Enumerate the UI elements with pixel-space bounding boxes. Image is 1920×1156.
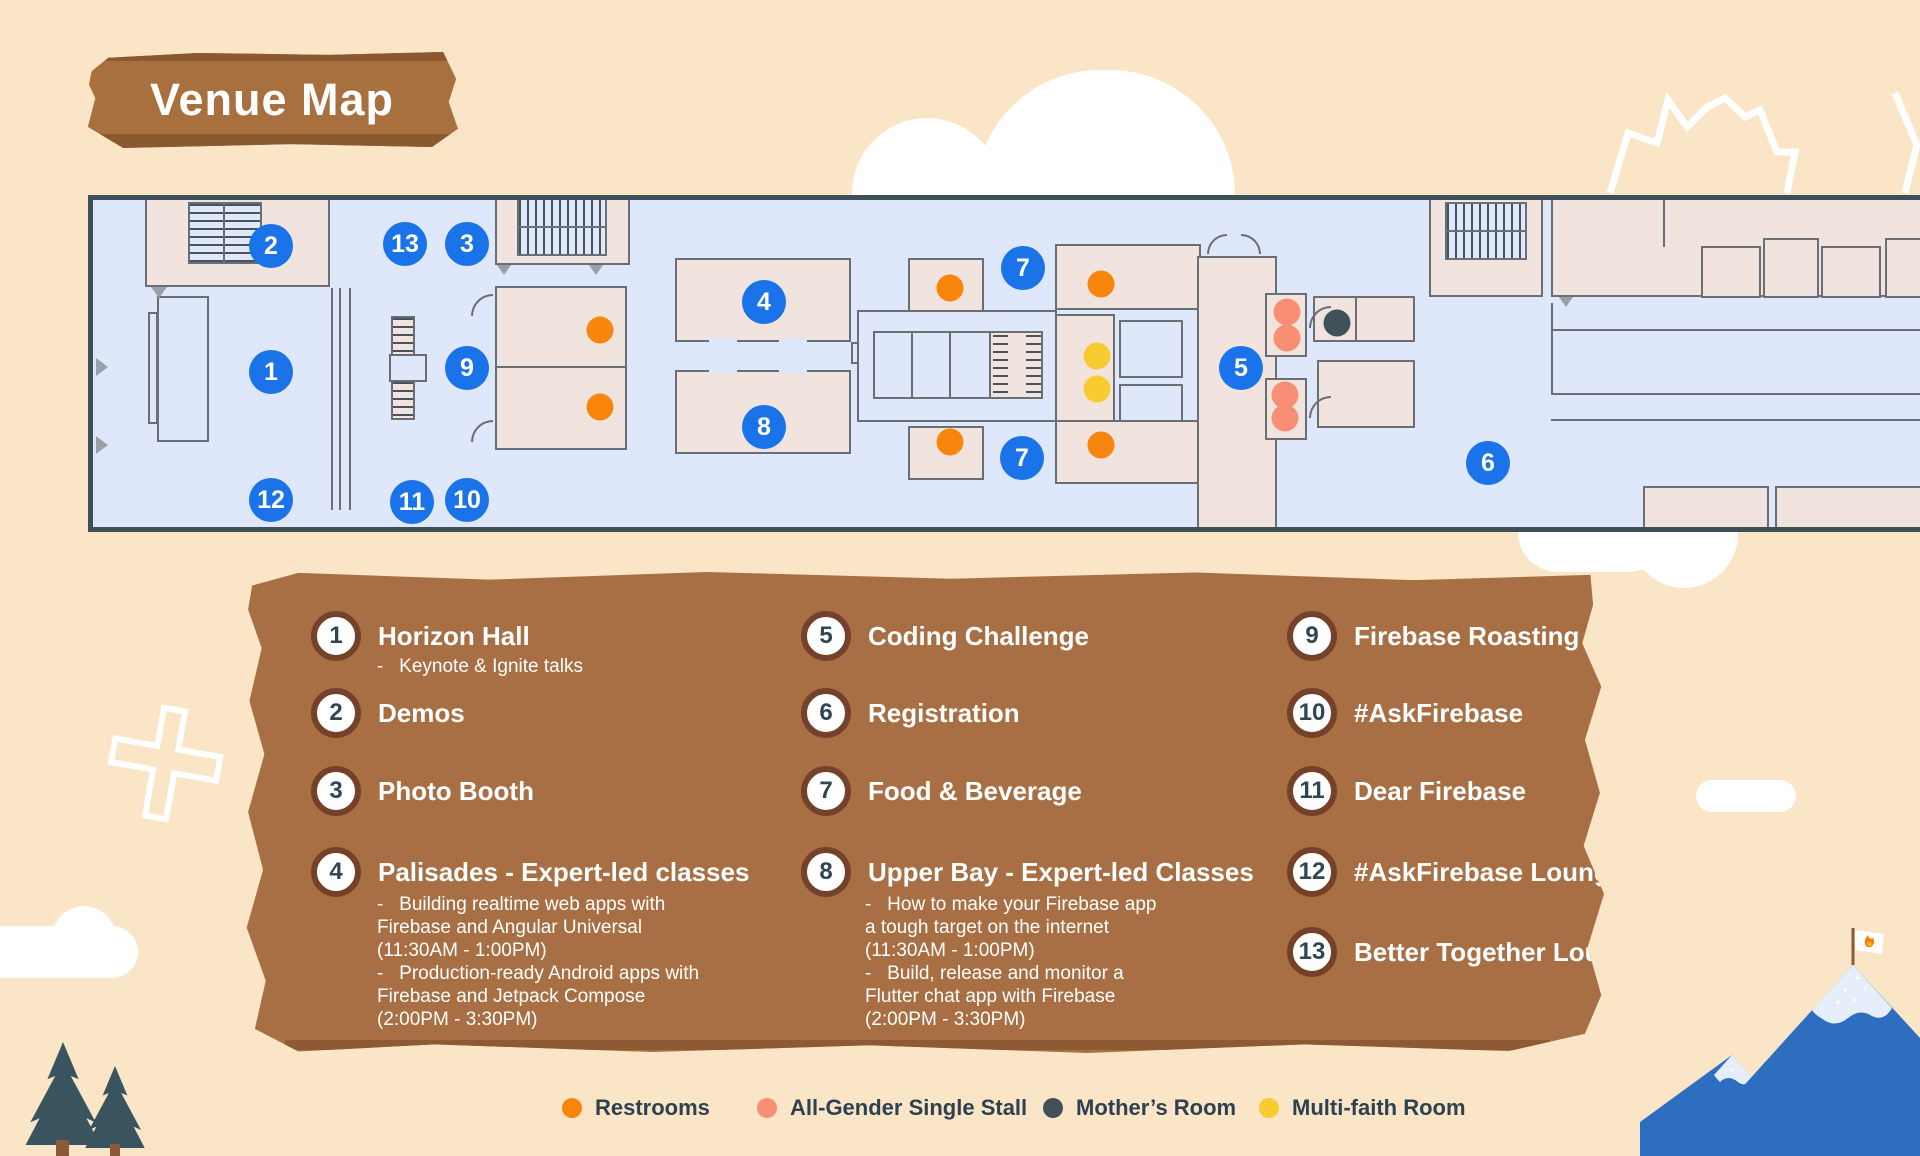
cloud <box>975 70 1235 195</box>
map-marker-7a: 7 <box>1001 246 1045 290</box>
wall <box>331 288 333 510</box>
multi-faith-dot <box>1084 376 1111 403</box>
room <box>1317 360 1415 428</box>
legend-number-badge: 11 <box>1287 766 1337 816</box>
legend-sub-line: (11:30AM - 1:00PM) <box>377 939 699 962</box>
wall <box>349 288 351 510</box>
cloud <box>52 906 116 970</box>
legend-number-badge: 1 <box>311 611 361 661</box>
legend-item-12: 12 #AskFirebase Lounge <box>1287 847 1624 897</box>
doorway <box>779 338 807 344</box>
multi-faith-dot <box>1084 343 1111 370</box>
legend-item-3: 3 Photo Booth <box>311 766 534 816</box>
key-item-mothers-room: Mother’s Room <box>1043 1095 1236 1121</box>
door-arc <box>1207 234 1227 254</box>
legend-sub-item: - How to make your Firebase app a tough … <box>865 893 1156 1031</box>
key-label: Restrooms <box>595 1095 710 1121</box>
map-marker-9: 9 <box>445 346 489 390</box>
cloud <box>1696 780 1796 812</box>
legend-item-6: 6 Registration <box>801 688 1020 738</box>
legend-sub-line: - Building realtime web apps with <box>377 893 699 916</box>
legend-label: Palisades - Expert-led classes <box>378 857 749 888</box>
map-marker-10: 10 <box>445 478 489 522</box>
legend-label: Dear Firebase <box>1354 776 1526 807</box>
wall <box>1445 230 1527 232</box>
legend-number-badge: 5 <box>801 611 851 661</box>
wall <box>1355 296 1357 342</box>
key-label: Multi-faith Room <box>1292 1095 1466 1121</box>
map-marker-12: 12 <box>249 478 293 522</box>
elevator-bank <box>873 331 991 399</box>
legend-item-13: 13 Better Together Lounge <box>1287 927 1647 977</box>
big-mountain <box>1680 965 1920 1156</box>
legend-sub-item: - Keynote & Ignite talks <box>377 655 583 678</box>
restroom-dot <box>937 429 964 456</box>
legend-panel: 1 Horizon Hall - Keynote & Ignite talks … <box>244 571 1604 1053</box>
legend-sub-line: - Production-ready Android apps with <box>377 962 699 985</box>
wall <box>949 331 951 399</box>
legend-item-2: 2 Demos <box>311 688 465 738</box>
legend-label: Upper Bay - Expert-led Classes <box>868 857 1254 888</box>
legend-label: #AskFirebase <box>1354 698 1523 729</box>
wall <box>911 331 913 399</box>
key-item-multi-faith: Multi-faith Room <box>1259 1095 1466 1121</box>
cross-outline-icon <box>90 663 240 864</box>
restroom-block <box>1055 420 1201 484</box>
legend-label: Photo Booth <box>378 776 534 807</box>
door-wedge <box>96 358 108 376</box>
wall <box>1551 419 1920 421</box>
room <box>1643 486 1769 532</box>
legend-number-badge: 10 <box>1287 688 1337 738</box>
wall <box>1551 393 1920 395</box>
venue-floor-plan: 2 13 3 4 7 1 9 5 8 7 6 12 11 10 <box>88 195 1920 532</box>
wall <box>517 226 607 228</box>
multi-faith-room <box>1055 314 1115 424</box>
wall <box>223 202 225 264</box>
cloud <box>852 118 1002 195</box>
legend-number-badge: 6 <box>801 688 851 738</box>
legend-label: #AskFirebase Lounge <box>1354 857 1624 888</box>
key-item-all-gender: All-Gender Single Stall <box>757 1095 1027 1121</box>
legend-sub-line: (2:00PM - 3:30PM) <box>865 1008 1156 1031</box>
room <box>1775 486 1920 532</box>
landing <box>389 354 427 382</box>
room <box>1701 246 1761 298</box>
map-marker-4: 4 <box>742 280 786 324</box>
pine-tree <box>84 1066 146 1148</box>
legend-number-badge: 2 <box>311 688 361 738</box>
legend-sub-line: (2:00PM - 3:30PM) <box>377 1008 699 1031</box>
legend-item-4: 4 Palisades - Expert-led classes <box>311 847 749 897</box>
restroom-dot-icon <box>562 1098 582 1118</box>
legend-label: Coding Challenge <box>868 621 1089 652</box>
legend-label: Demos <box>378 698 465 729</box>
door-arc <box>1309 396 1331 418</box>
room <box>1119 320 1183 378</box>
tree-trunk <box>56 1140 69 1156</box>
legend-label: Food & Beverage <box>868 776 1082 807</box>
legend-item-9: 9 Firebase Roasting <box>1287 611 1579 661</box>
key-label: All-Gender Single Stall <box>790 1095 1027 1121</box>
stage-step <box>148 312 158 424</box>
room <box>1821 246 1881 298</box>
cloud <box>1630 532 1738 588</box>
multi-faith-dot-icon <box>1259 1098 1279 1118</box>
doorway <box>709 368 737 374</box>
map-marker-13: 13 <box>383 222 427 266</box>
map-marker-8: 8 <box>742 405 786 449</box>
stairs <box>993 335 1008 395</box>
door-wedge <box>96 436 108 454</box>
mothers-room-dot-icon <box>1043 1098 1063 1118</box>
legend-item-8: 8 Upper Bay - Expert-led Classes <box>801 847 1254 897</box>
stairs <box>1026 335 1041 395</box>
legend-item-11: 11 Dear Firebase <box>1287 766 1526 816</box>
door-wedge <box>1559 297 1573 307</box>
map-marker-3: 3 <box>445 222 489 266</box>
door-arc <box>1241 234 1261 254</box>
all-gender-dot-icon <box>757 1098 777 1118</box>
key-label: Mother’s Room <box>1076 1095 1236 1121</box>
mountains <box>1640 920 1920 1156</box>
legend-number-badge: 3 <box>311 766 361 816</box>
restroom-dot <box>1088 432 1115 459</box>
legend-sub-line: - Keynote & Ignite talks <box>377 655 583 678</box>
legend-label: Better Together Lounge <box>1354 937 1647 968</box>
stage <box>157 296 209 442</box>
room <box>1763 238 1819 298</box>
restroom-dot <box>587 394 614 421</box>
legend-sub-line: Firebase and Jetpack Compose <box>377 985 699 1008</box>
all-gender-dot <box>1274 325 1301 352</box>
venue-map-page: { "title": "Venue Map", "map": { "marker… <box>0 0 1920 1156</box>
door-arc <box>471 294 493 316</box>
doorway <box>779 368 807 374</box>
legend-item-10: 10 #AskFirebase <box>1287 688 1523 738</box>
restroom-block <box>1055 244 1201 310</box>
doorway <box>709 338 737 344</box>
door-arc <box>471 420 493 442</box>
page-title: Venue Map <box>150 74 394 126</box>
restroom-dot <box>937 275 964 302</box>
wall <box>1551 329 1920 331</box>
spark-outline-icon <box>1595 85 1920 197</box>
legend-sub-line: - How to make your Firebase app <box>865 893 1156 916</box>
map-marker-11: 11 <box>390 480 434 524</box>
map-marker-6: 6 <box>1466 441 1510 485</box>
pine-tree <box>24 1042 102 1145</box>
legend-sub-line: - Build, release and monitor a <box>865 962 1156 985</box>
legend-number-badge: 8 <box>801 847 851 897</box>
legend-label: Firebase Roasting <box>1354 621 1579 652</box>
wall <box>1663 197 1665 247</box>
legend-label: Horizon Hall <box>378 621 530 652</box>
tree-trunk <box>110 1144 120 1156</box>
room <box>1885 238 1920 298</box>
restroom-dot <box>587 317 614 344</box>
legend-sub-line: a tough target on the internet <box>865 916 1156 939</box>
map-marker-5: 5 <box>1219 346 1263 390</box>
wall <box>495 366 627 368</box>
legend-number-badge: 4 <box>311 847 361 897</box>
title-banner: Venue Map <box>86 52 458 148</box>
legend-sub-line: Firebase and Angular Universal <box>377 916 699 939</box>
wall <box>1551 303 1553 395</box>
legend-item-1: 1 Horizon Hall <box>311 611 530 661</box>
legend-sub-line: (11:30AM - 1:00PM) <box>865 939 1156 962</box>
legend-sub-line: Flutter chat app with Firebase <box>865 985 1156 1008</box>
wall <box>339 288 341 510</box>
map-marker-7b: 7 <box>1000 436 1044 480</box>
legend-item-7: 7 Food & Beverage <box>801 766 1082 816</box>
all-gender-dot <box>1274 299 1301 326</box>
all-gender-dot <box>1272 405 1299 432</box>
legend-item-5: 5 Coding Challenge <box>801 611 1089 661</box>
legend-sub-item: - Building realtime web apps with Fireba… <box>377 893 699 1031</box>
restroom-block <box>495 286 627 450</box>
legend-number-badge: 12 <box>1287 847 1337 897</box>
legend-number-badge: 9 <box>1287 611 1337 661</box>
restroom-dot <box>1088 271 1115 298</box>
door-wedge <box>497 265 511 275</box>
map-marker-2: 2 <box>249 224 293 268</box>
map-marker-1: 1 <box>249 350 293 394</box>
legend-number-badge: 7 <box>801 766 851 816</box>
key-item-restrooms: Restrooms <box>562 1095 710 1121</box>
mothers-room-dot <box>1324 310 1351 337</box>
legend-label: Registration <box>868 698 1020 729</box>
door-wedge <box>589 265 603 275</box>
legend-number-badge: 13 <box>1287 927 1337 977</box>
